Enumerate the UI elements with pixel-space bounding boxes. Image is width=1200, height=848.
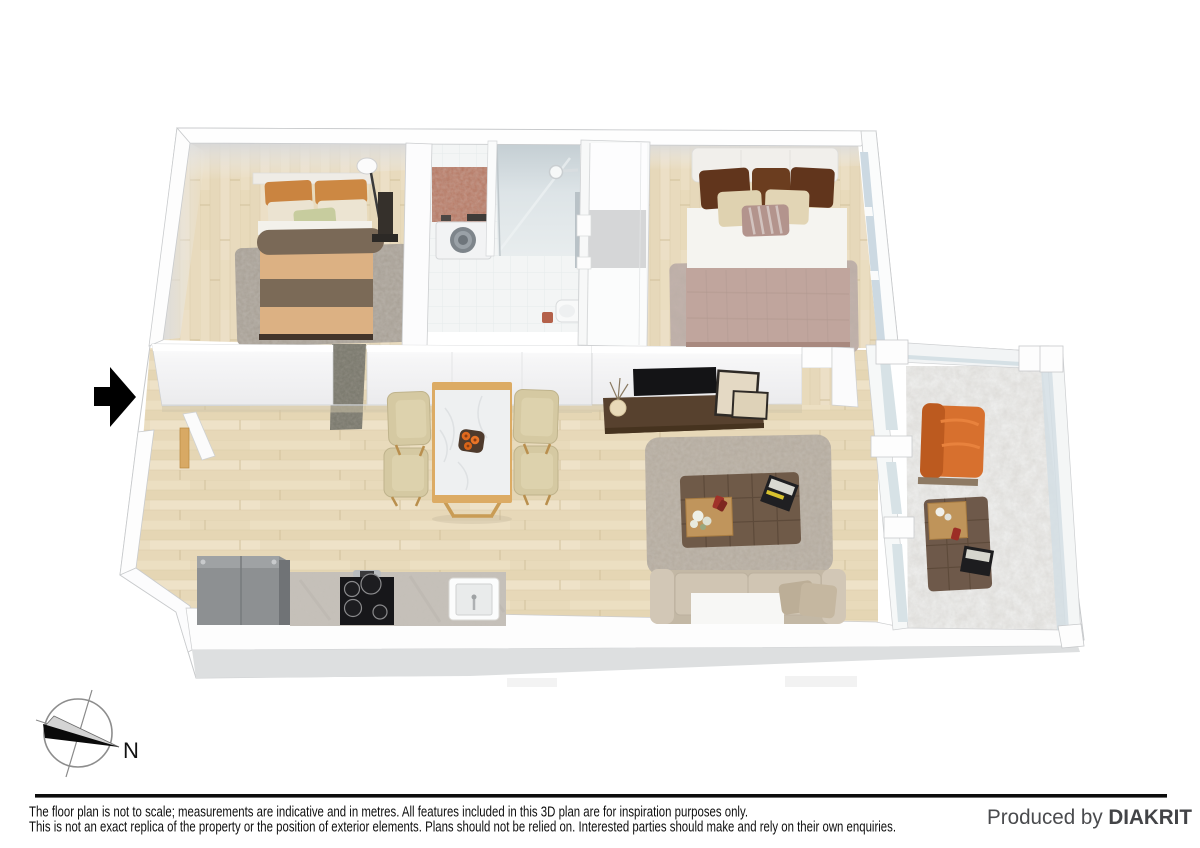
- svg-text:Produced by DIAKRIT: Produced by DIAKRIT: [987, 805, 1192, 829]
- svg-text:The floor plan is not to scale: The floor plan is not to scale; measurem…: [29, 805, 748, 821]
- svg-text:N: N: [123, 738, 139, 763]
- svg-text:This is not an exact replica o: This is not an exact replica of the prop…: [29, 820, 896, 836]
